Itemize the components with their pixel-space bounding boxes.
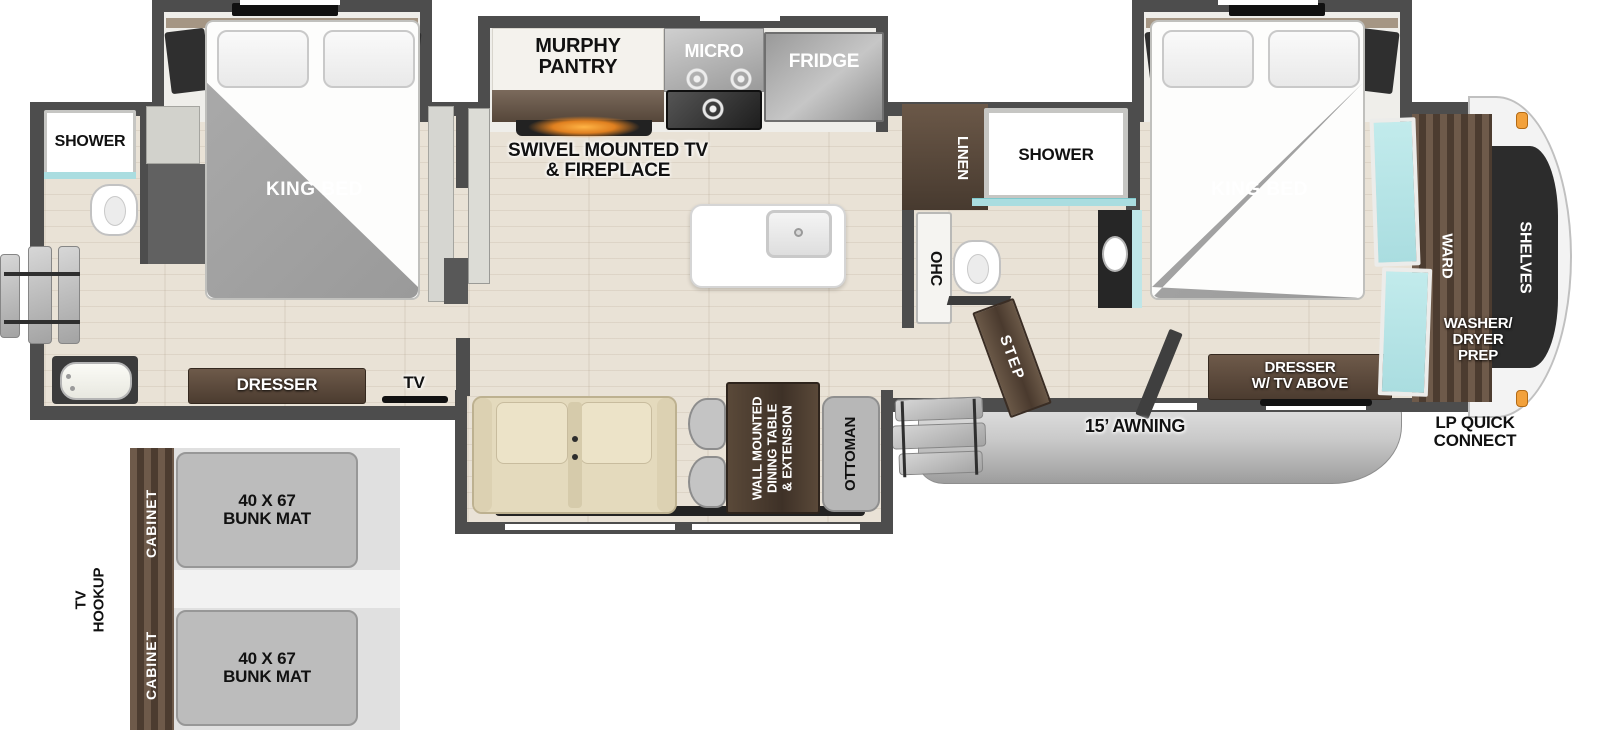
front-tv-icon: [1260, 399, 1372, 406]
bunk-bottom-line-2: BUNK MAT: [223, 668, 311, 686]
island-sink-drain: [794, 228, 803, 237]
burner-icon-3: [700, 96, 726, 122]
ward-text: WARD: [1439, 233, 1455, 278]
dining-line-2: DINING TABLE: [766, 396, 781, 500]
swivel-line-1: SWIVEL MOUNTED TV: [496, 141, 720, 161]
rear-shower-text: SHOWER: [55, 133, 126, 150]
mid-toilet-bowl: [967, 254, 989, 284]
swivel-line-2: & FIREPLACE: [496, 161, 720, 181]
rear-toilet-icon: [90, 184, 138, 236]
sofa-cupholder-1: [572, 436, 578, 442]
step-tread-2: [892, 422, 987, 449]
murphy-line-2: PANTRY: [492, 57, 664, 78]
bunk-mat-top: 40 X 67 BUNK MAT: [176, 452, 358, 568]
bunk-mat-bottom: 40 X 67 BUNK MAT: [176, 610, 358, 726]
bunk-bottom-line-1: 40 X 67: [223, 650, 311, 668]
bath-sink-icon: [1102, 236, 1128, 272]
fridge-label: FRIDGE: [764, 52, 884, 72]
dining-chair-2: [688, 456, 726, 508]
ottoman: OTTOMAN: [822, 396, 880, 512]
rear-tv-icon: [382, 396, 448, 403]
tv-hookup-line-1: TV: [72, 568, 90, 633]
rear-tv-label: TV: [392, 374, 436, 392]
rear-shower-glass-icon: [44, 172, 136, 179]
swivel-tv-fireplace-label: SWIVEL MOUNTED TV & FIREPLACE: [496, 141, 720, 181]
lp-line-1: LP QUICK: [1408, 414, 1542, 432]
wd-line-1: WASHER/: [1412, 316, 1544, 332]
mid-toilet-icon: [953, 240, 1001, 294]
ohc-label: OHC: [916, 222, 952, 314]
rear-step-rail-bottom: [4, 320, 80, 324]
micro-text: MICRO: [685, 41, 744, 61]
mid-shower-glass-icon: [972, 198, 1136, 206]
rear-wardrobe-upper: [146, 106, 200, 164]
bunk-mat-top-label: 40 X 67 BUNK MAT: [223, 492, 311, 528]
micro-label: MICRO: [664, 42, 764, 61]
wall-rear-left-lower: [30, 334, 44, 420]
burner-icon-2: [728, 66, 754, 92]
tv-hookup-label: TV HOOKUP: [50, 540, 130, 660]
cabinet-label-top: CABINET: [132, 466, 172, 580]
washer-dryer-prep-label: WASHER/ DRYER PREP: [1412, 316, 1544, 364]
lp-line-2: CONNECT: [1408, 432, 1542, 450]
bedroom-door-panel: [468, 108, 490, 284]
bunk-top-line-1: 40 X 67: [223, 492, 311, 510]
bath-mirror-icon: [1132, 210, 1142, 308]
front-king-bed-label: KING BED: [1152, 180, 1367, 200]
awning-label: 15’ AWNING: [1040, 417, 1230, 436]
bunk-mat-bottom-label: 40 X 67 BUNK MAT: [223, 650, 311, 686]
ward-label: WARD: [1432, 200, 1462, 312]
front-dresser-line-1: DRESSER: [1208, 360, 1392, 376]
step-label: STEP: [996, 333, 1027, 383]
front-king-bed-text: KING BED: [1211, 179, 1308, 200]
rear-king-bed-text: KING BED: [266, 179, 363, 200]
mid-shower-label: SHOWER: [984, 146, 1128, 164]
entry-steps-main: [891, 396, 990, 481]
dining-chair-1: [688, 398, 726, 450]
linen-text: LINEN: [954, 136, 970, 180]
kitchen-slide-window-gap: [700, 16, 780, 21]
sofa-armrest-left: [474, 398, 492, 512]
rear-tub-icon: [60, 362, 132, 400]
floorplan-canvas: 15’ AWNING LP QUICK CONNECT: [0, 0, 1600, 744]
sofa-armrest-right: [657, 398, 675, 512]
wd-line-3: PREP: [1412, 348, 1544, 364]
rear-bed-pillow-left: [217, 30, 309, 88]
sofa: [472, 396, 677, 514]
front-dresser-label: DRESSER W/ TV ABOVE: [1208, 360, 1392, 392]
lp-quick-connect-label: LP QUICK CONNECT: [1408, 414, 1542, 450]
rear-bed-pillow-right: [323, 30, 415, 88]
fridge-text: FRIDGE: [789, 51, 860, 72]
dining-table-label: WALL MOUNTED DINING TABLE & EXTENSION: [751, 396, 796, 500]
rear-tub-faucet-dot-2: [70, 386, 75, 391]
tv-hookup-line-2: HOOKUP: [90, 568, 108, 633]
cabinet-top-text: CABINET: [145, 488, 160, 557]
cabinet-label-bottom: CABINET: [132, 608, 172, 722]
ward-mirror-door-1: [1369, 117, 1420, 267]
wall-bath-left: [902, 210, 914, 328]
rear-slide-window-gap: [240, 0, 340, 5]
front-dresser-line-2: W/ TV ABOVE: [1208, 376, 1392, 392]
wall-rear-left-upper: [30, 102, 44, 252]
rear-dresser-text: DRESSER: [237, 375, 318, 394]
sofa-cushion-right: [580, 402, 652, 464]
rear-step-1: [0, 254, 20, 338]
murphy-pantry-label: MURPHY PANTRY: [492, 36, 664, 78]
tv-hookup-block: TV HOOKUP: [72, 568, 108, 633]
rear-shower-label: SHOWER: [40, 134, 140, 151]
rear-wardrobe-lower: [148, 164, 206, 264]
mid-shower-text: SHOWER: [1018, 145, 1093, 164]
front-bed-pillow-left: [1162, 30, 1254, 88]
bunk-top-line-2: BUNK MAT: [223, 510, 311, 528]
rear-closet-dark-panel: [444, 258, 468, 304]
front-bed-pillow-right: [1268, 30, 1360, 88]
sofa-cushion-left: [496, 402, 568, 464]
step-tread-1: [895, 396, 984, 421]
front-slide-window-gap: [1218, 0, 1318, 5]
ohc-text: OHC: [926, 251, 943, 286]
sofa-slide-window-strip-2: [692, 524, 860, 530]
rear-king-bed-label: KING BED: [207, 180, 422, 200]
bunkroom-gap: [174, 570, 400, 608]
dining-table: WALL MOUNTED DINING TABLE & EXTENSION: [726, 382, 820, 514]
rear-step-2: [28, 246, 52, 344]
wd-line-2: DRYER: [1412, 332, 1544, 348]
fridge: [764, 32, 884, 122]
shelves-label: SHELVES: [1506, 186, 1542, 328]
front-king-bed: KING BED: [1150, 20, 1365, 300]
awning-label-text: 15’ AWNING: [1085, 416, 1185, 436]
rear-step-3: [58, 246, 80, 344]
entry-steps-rear: [0, 246, 84, 346]
linen-label: LINEN: [944, 116, 980, 200]
rear-toilet-bowl: [104, 196, 126, 226]
dining-line-3: & EXTENSION: [780, 396, 795, 500]
rear-step-rail-top: [4, 272, 80, 276]
wall-bottom-rear: [30, 406, 468, 420]
clearance-light-top-icon: [1516, 112, 1528, 129]
murphy-line-1: MURPHY: [492, 36, 664, 57]
rear-tv-text: TV: [403, 373, 424, 392]
shelves-text: SHELVES: [1516, 221, 1533, 293]
dining-line-1: WALL MOUNTED: [751, 396, 766, 500]
sofa-slide-window-strip-1: [505, 524, 675, 530]
burner-icon-1: [684, 66, 710, 92]
clearance-light-bottom-icon: [1516, 390, 1528, 407]
rear-tub-faucet-dot-1: [66, 374, 71, 379]
rear-king-bed: KING BED: [205, 20, 420, 300]
sofa-cupholder-2: [572, 454, 578, 460]
step-tread-3: [898, 451, 983, 476]
fireplace-glow-icon: [528, 116, 640, 138]
rear-dresser-label: DRESSER: [188, 376, 366, 394]
cabinet-bottom-text: CABINET: [145, 630, 160, 699]
ottoman-text: OTTOMAN: [843, 417, 859, 491]
